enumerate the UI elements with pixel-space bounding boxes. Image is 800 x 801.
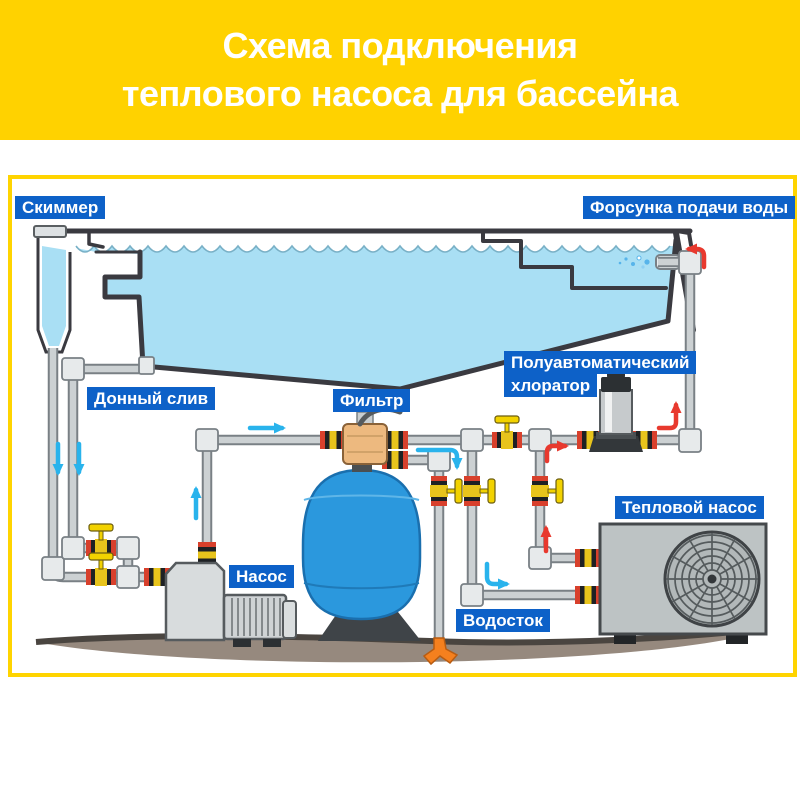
elbow-fitting — [428, 449, 450, 471]
label-filter: Фильтр — [333, 389, 410, 412]
heat-pump-unit — [600, 524, 766, 644]
elbow-fitting — [679, 429, 701, 452]
label-chlorinator-line2: хлоратор — [504, 374, 597, 397]
elbow-fitting — [117, 537, 139, 559]
tee-fitting — [117, 566, 139, 588]
label-water-supply-nozzle: Форсунка подачи воды — [583, 196, 795, 219]
elbow-fitting — [62, 537, 84, 559]
skimmer-valve — [86, 553, 116, 586]
label-pump: Насос — [229, 565, 294, 588]
tee-fitting — [461, 429, 483, 451]
label-skimmer: Скиммер — [15, 196, 105, 219]
label-drain: Водосток — [456, 609, 550, 632]
heat-pump-supply-valve — [463, 476, 495, 506]
heat-pump-return-valve — [531, 476, 563, 506]
waste-valve — [430, 476, 462, 506]
cold-flow-arrow — [487, 564, 506, 584]
bypass-valve — [492, 416, 522, 449]
hot-flow-arrow — [547, 446, 565, 461]
label-chlorinator-line1: Полуавтоматический — [504, 351, 696, 374]
page: { "title": { "line1": "Схема подключения… — [0, 0, 800, 801]
elbow-fitting — [42, 557, 64, 580]
bottom-drain-fitting — [139, 357, 154, 374]
label-heat-pump: Тепловой насос — [615, 496, 764, 519]
label-bottom-drain: Донный слив — [87, 387, 215, 410]
hot-flow-arrow — [659, 405, 676, 428]
elbow-fitting — [196, 429, 218, 451]
bottom-drain-valve — [86, 524, 116, 557]
filter-tank — [303, 470, 420, 619]
label-chlorinator: Полуавтоматический хлоратор — [504, 351, 696, 397]
elbow-fitting — [62, 358, 84, 380]
fan-grille-icon — [665, 532, 759, 626]
elbow-fitting — [679, 251, 701, 274]
skimmer-box — [34, 226, 70, 352]
elbow-fitting — [461, 584, 483, 606]
